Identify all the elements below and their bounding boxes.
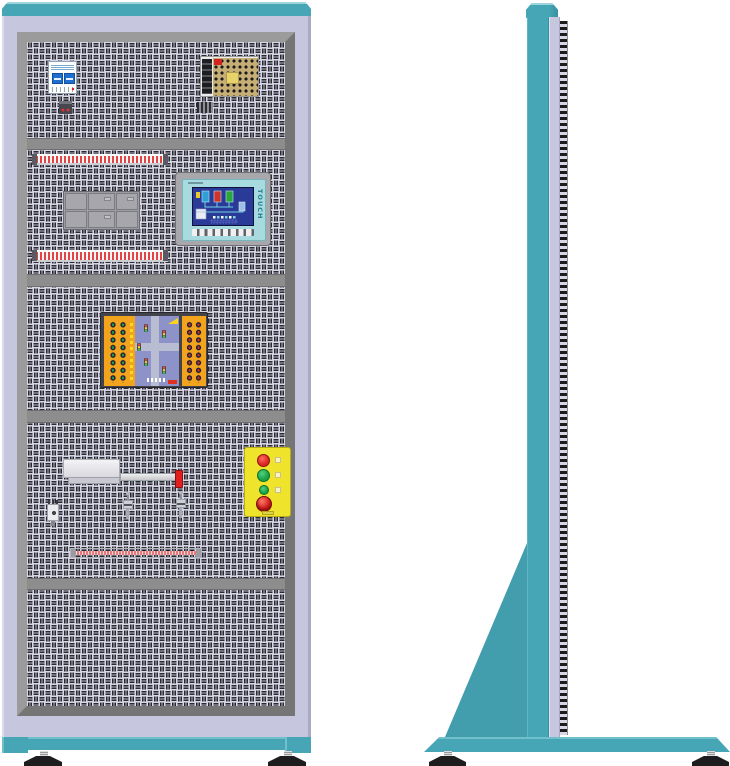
terminal-connector-icon (197, 102, 213, 113)
emergency-stop-button[interactable] (256, 496, 272, 512)
traffic-light-training-board (100, 312, 208, 388)
road-horizontal (135, 343, 179, 351)
side-base-plate (424, 737, 730, 752)
station-bottom-tab (262, 511, 274, 515)
terminal-connector-icon (59, 101, 72, 114)
red-lever-icon[interactable] (175, 470, 183, 488)
psu-transformer (226, 72, 239, 84)
cabinet-top-cap (2, 2, 311, 17)
button-label-plate (275, 487, 281, 493)
terminal-strip-icon (32, 250, 168, 262)
section-divider-3 (27, 410, 285, 423)
equipment-cabinet-drawing: TOUCH (0, 0, 730, 766)
hmi-screen[interactable] (192, 187, 254, 226)
section-divider-1 (27, 138, 285, 150)
sensor-valve-icon (176, 491, 186, 518)
traffic-light-icon (162, 366, 166, 374)
pneumatic-actuator-base (68, 477, 120, 484)
relay-module (65, 193, 87, 210)
traffic-light-icon (162, 330, 166, 338)
board-red-label (168, 380, 177, 384)
button-label-plate (275, 457, 281, 463)
jack-sockets-green (108, 321, 128, 383)
yellow-label-column (130, 323, 133, 381)
green-button[interactable] (257, 469, 270, 482)
leveling-foot-icon (692, 756, 729, 766)
banana-jack-panel-green (104, 316, 135, 386)
red-button[interactable] (257, 454, 270, 467)
base-trim-strip (2, 737, 311, 750)
traffic-light-icon (137, 343, 141, 351)
intersection-diagram (135, 316, 179, 386)
hmi-touch-label: TOUCH (256, 189, 264, 223)
pushbutton-station (244, 447, 291, 517)
relay-module (116, 211, 138, 228)
relay-module (116, 193, 138, 210)
psu-red-label (214, 59, 222, 65)
side-upright-column (527, 17, 549, 737)
banana-jack-panel-red (182, 316, 206, 386)
terminal-strip-icon (32, 154, 168, 165)
hmi-touch-panel: TOUCH (175, 172, 271, 246)
side-panel-edge (549, 17, 560, 737)
sensor-lower-stem (179, 508, 182, 518)
traffic-light-icon (144, 358, 148, 366)
small-green-button[interactable] (259, 485, 269, 495)
psu-terminal-block (202, 59, 212, 94)
breaker-toggle-icon[interactable] (52, 73, 63, 84)
power-supply-icon (200, 56, 259, 97)
relay-module (88, 193, 115, 210)
yellow-wedge (168, 318, 178, 324)
hmi-screen-mockup (193, 188, 253, 225)
sensor-body (123, 500, 133, 509)
section-divider-4 (27, 578, 285, 590)
leveling-foot-icon (429, 756, 466, 766)
actuator-rod (120, 473, 177, 481)
side-triangular-gusset (445, 543, 527, 737)
road-vertical (151, 316, 159, 386)
relay-icon (47, 500, 59, 526)
base-corner-block (2, 737, 28, 753)
side-perforation-strip (560, 21, 568, 735)
relay-module (65, 211, 87, 228)
relay-module (88, 211, 115, 228)
side-top-cap (526, 3, 558, 18)
sensor-valve-icon (123, 492, 133, 519)
button-label-plate (275, 472, 281, 478)
sensor-lower-stem (126, 509, 129, 519)
traffic-light-icon (144, 324, 148, 332)
breaker-label-band (51, 64, 74, 70)
relay-module-block-icon (63, 191, 140, 230)
breaker-toggle-icon[interactable] (64, 73, 75, 84)
hmi-brand-mark (188, 182, 203, 184)
relay-body (47, 504, 59, 521)
jack-sockets-red (185, 321, 203, 383)
leveling-foot-icon (24, 756, 62, 766)
sensor-body (176, 499, 186, 508)
pneumatic-actuator-body (63, 459, 120, 478)
relay-lower-pin (51, 521, 55, 526)
section-divider-2 (27, 274, 285, 287)
hmi-function-keys[interactable] (192, 229, 254, 236)
circuit-breaker-icon[interactable] (48, 61, 77, 94)
breaker-markings (52, 87, 75, 92)
crosswalk-stripes (147, 378, 165, 382)
leveling-foot-icon (268, 756, 306, 766)
terminal-strip-icon (70, 548, 202, 558)
